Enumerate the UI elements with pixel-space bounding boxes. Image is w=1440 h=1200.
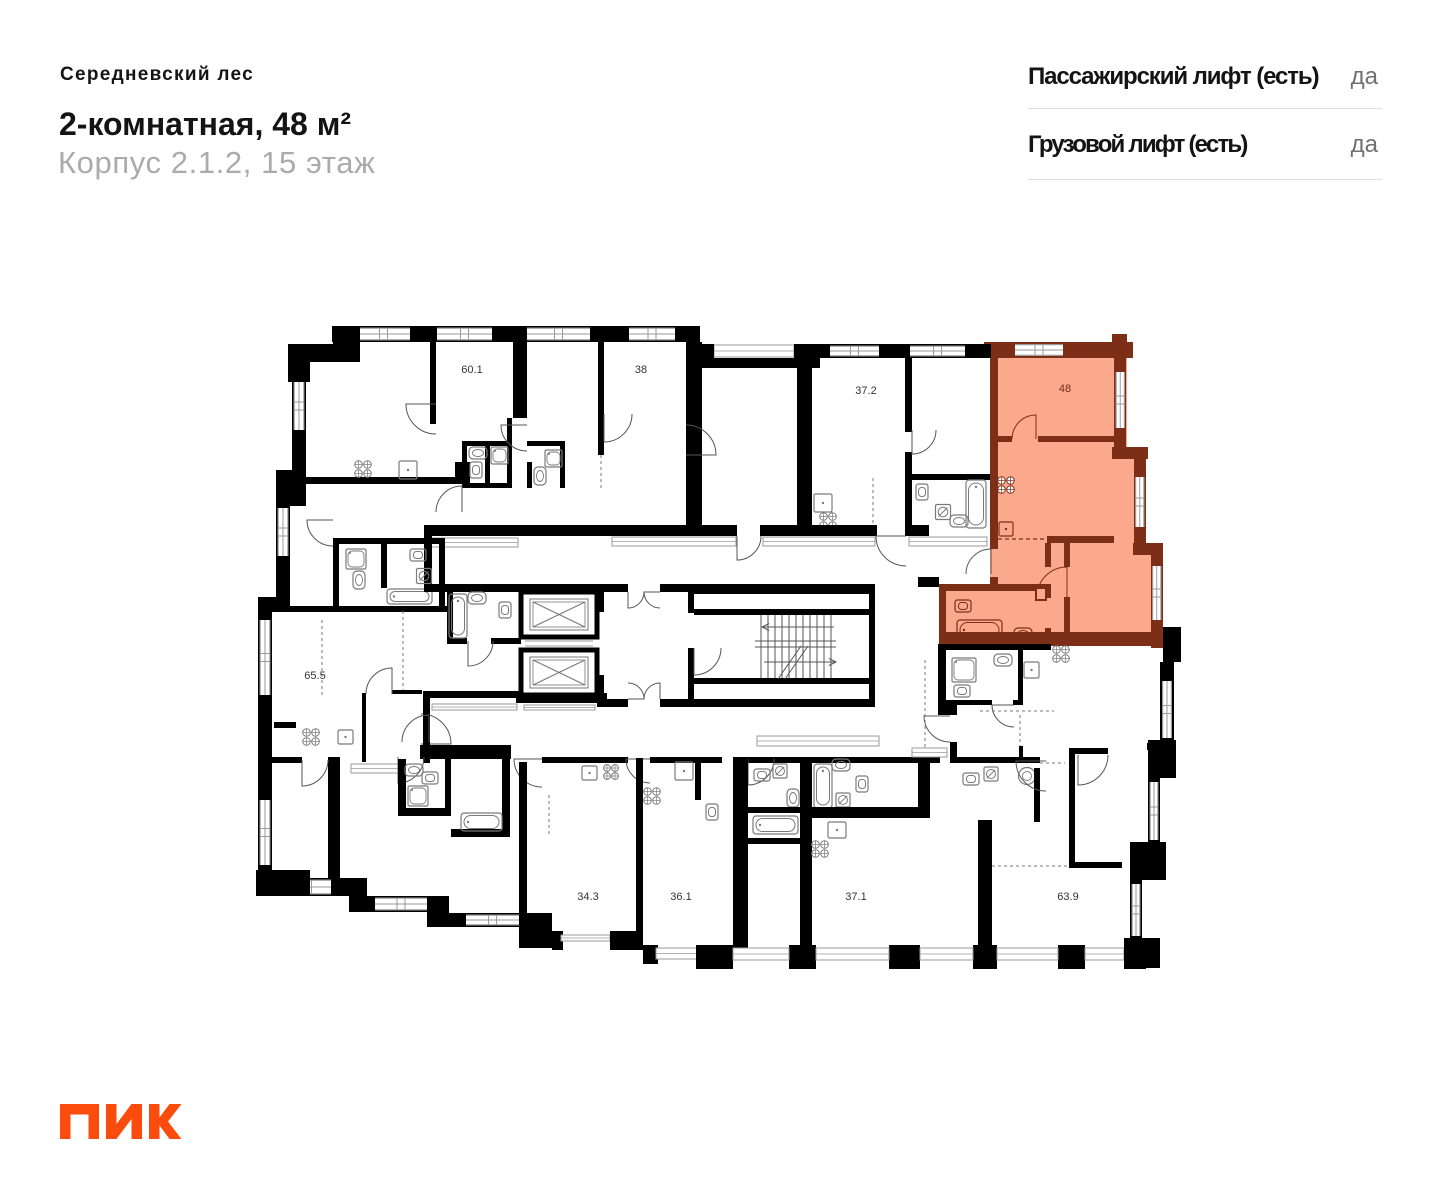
svg-text:48: 48 xyxy=(1059,383,1071,395)
svg-text:65.5: 65.5 xyxy=(304,670,325,682)
svg-text:36.1: 36.1 xyxy=(670,891,691,903)
svg-text:60.1: 60.1 xyxy=(461,364,482,376)
svg-text:63.9: 63.9 xyxy=(1057,891,1078,903)
svg-text:37.2: 37.2 xyxy=(855,385,876,397)
svg-text:38: 38 xyxy=(635,364,647,376)
svg-text:37.1: 37.1 xyxy=(845,891,866,903)
svg-text:34.3: 34.3 xyxy=(577,891,598,903)
